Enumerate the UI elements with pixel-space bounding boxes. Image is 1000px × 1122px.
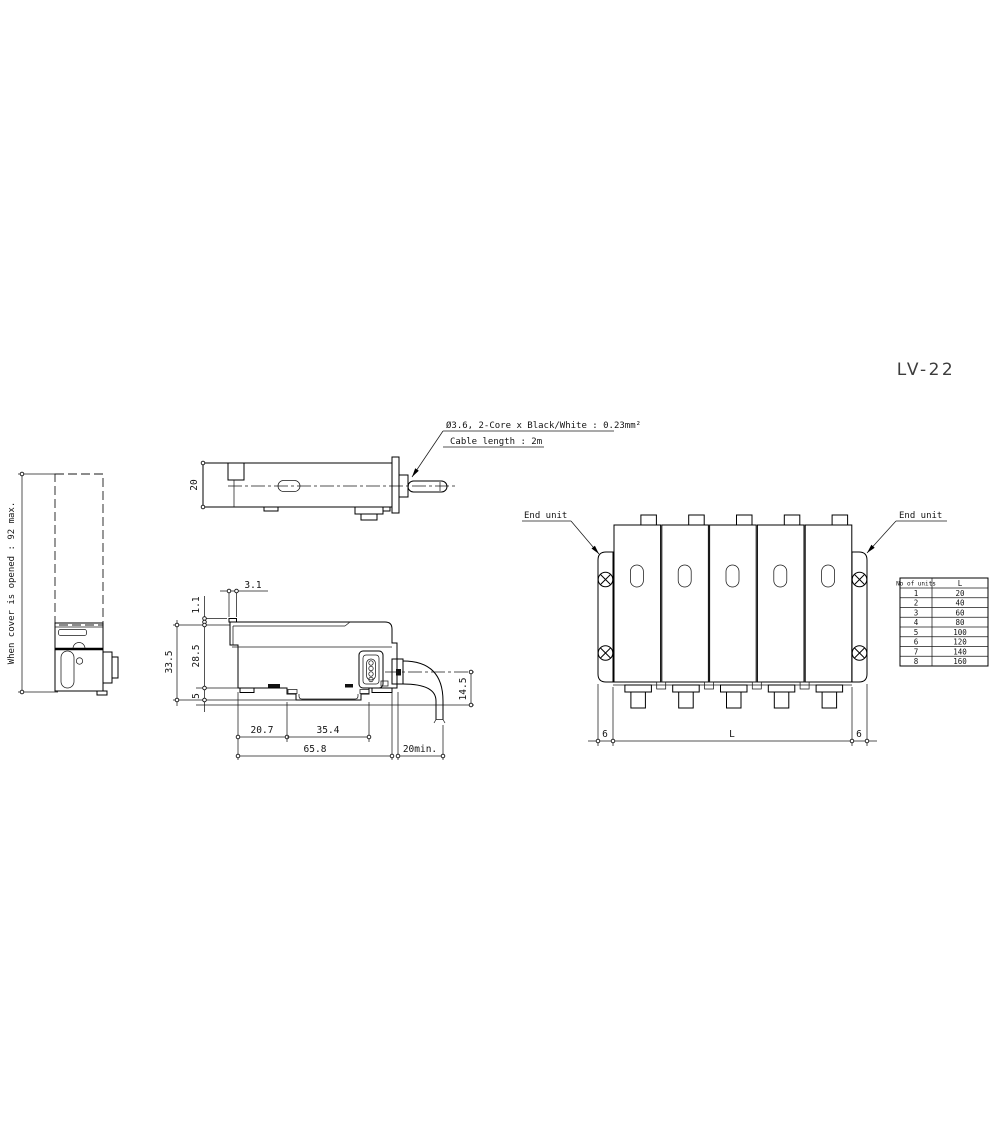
cell-length: 80 xyxy=(955,618,965,627)
top-view: 20 Ø3.6, 2-Core x Black/White : 0.23mm² … xyxy=(189,420,641,520)
dim-width-20-label: 20 xyxy=(189,479,200,491)
end-unit-left-label: End unit xyxy=(524,511,567,521)
side-view: 3.1 1.1 33.5 28.5 5 xyxy=(164,580,474,760)
cell-length: 40 xyxy=(955,599,965,608)
cell-length: 140 xyxy=(953,647,967,656)
cable-stub xyxy=(408,481,447,492)
dim-base-height: 5 xyxy=(191,693,202,699)
opened-cover-phantom-outline xyxy=(55,474,103,625)
table-row: 3 60 xyxy=(914,608,965,617)
dim-bend-radius: 20min. xyxy=(403,744,437,755)
amplifier-units xyxy=(614,515,852,708)
vent-slot xyxy=(268,684,280,688)
dim-span: L xyxy=(729,729,735,740)
dim-end-left: 6 xyxy=(602,729,608,740)
cell-length: 160 xyxy=(953,657,967,666)
mount-foot xyxy=(240,688,254,693)
vent-slot xyxy=(345,684,353,688)
leader-arrow-icon xyxy=(412,468,419,477)
table-row: 1 20 xyxy=(914,589,965,598)
din-channel-tray xyxy=(299,694,358,699)
table-row: 5 100 xyxy=(914,628,968,637)
side-view-dimensions: 3.1 1.1 33.5 28.5 5 xyxy=(164,580,473,760)
dim-width-20: 20 xyxy=(189,461,205,509)
din-latch-narrow xyxy=(361,514,377,520)
cover-tab xyxy=(229,619,237,623)
dim-overall-length: 65.8 xyxy=(304,744,327,755)
cable-flange xyxy=(392,457,399,513)
table-row: 2 40 xyxy=(914,599,965,608)
cable-length-text: Cable length : 2m xyxy=(450,437,542,447)
mount-foot xyxy=(97,691,107,695)
dim-body-height: 28.5 xyxy=(191,645,202,668)
cell-units: 5 xyxy=(914,628,919,637)
table-header-units: No of units xyxy=(896,581,936,588)
technical-drawing-canvas: LV-22 When cover is opened : 92 max. xyxy=(0,0,1000,1122)
model-title: LV-22 xyxy=(897,360,956,380)
mount-foot xyxy=(372,688,392,693)
end-unit-right-label: End unit xyxy=(899,511,942,521)
top-view-body-outline xyxy=(203,463,392,507)
dim-tab-height: 1.1 xyxy=(191,596,202,613)
cell-units: 6 xyxy=(914,638,919,647)
din-tab-small xyxy=(264,507,278,511)
dim-cable-drop: 14.5 xyxy=(458,678,469,701)
left-view-body xyxy=(55,623,118,695)
table-row: 4 80 xyxy=(914,618,965,627)
cell-length: 120 xyxy=(953,638,967,647)
end-unit-right xyxy=(852,552,867,682)
cable-spec-text: Ø3.6, 2-Core x Black/White : 0.23mm² xyxy=(446,420,641,431)
dim-cover-opened: When cover is opened : 92 max. xyxy=(7,472,58,694)
assembly-view: End unit End unit 6 L 6 xyxy=(522,511,947,746)
units-table: No of units L 1 20 2 40 3 60 4 80 5 100 … xyxy=(896,578,988,666)
cell-units: 3 xyxy=(914,608,919,617)
cell-length: 60 xyxy=(955,608,965,617)
mount-tab-top xyxy=(228,463,244,480)
din-latch-wide xyxy=(355,507,383,514)
cell-units: 7 xyxy=(914,647,919,656)
cell-length: 100 xyxy=(953,628,967,637)
end-unit-left xyxy=(598,552,613,682)
dim-slot-width: 35.4 xyxy=(317,725,340,736)
table-row: 7 140 xyxy=(914,647,968,656)
cell-units: 2 xyxy=(914,599,919,608)
dim-overall-height: 33.5 xyxy=(164,651,175,674)
phillips-screw-icon xyxy=(852,572,867,587)
phillips-screw-icon xyxy=(852,646,867,661)
cell-units: 1 xyxy=(914,589,919,598)
screw-hole-icon xyxy=(76,658,82,664)
phillips-screw-icon xyxy=(598,646,613,661)
cable-connector-side xyxy=(103,652,112,683)
cable-annotation: Ø3.6, 2-Core x Black/White : 0.23mm² Cab… xyxy=(412,420,641,477)
cell-units: 4 xyxy=(914,618,919,627)
drawing-page: LV-22 When cover is opened : 92 max. xyxy=(0,0,1000,1122)
table-row: 8 160 xyxy=(914,657,968,666)
phillips-screw-icon xyxy=(598,572,613,587)
left-view: When cover is opened : 92 max. xyxy=(7,472,118,695)
dim-cover-opened-label: When cover is opened : 92 max. xyxy=(7,502,17,665)
dim-front-to-slot: 20.7 xyxy=(251,725,274,736)
display-connector-block xyxy=(359,651,388,688)
cell-units: 8 xyxy=(914,657,919,666)
end-unit-left-callout: End unit xyxy=(522,511,599,554)
end-unit-right-callout: End unit xyxy=(867,511,947,553)
table-header-length: L xyxy=(958,579,963,588)
dim-end-right: 6 xyxy=(856,729,862,740)
cell-length: 20 xyxy=(955,589,965,598)
dim-tab-width: 3.1 xyxy=(244,580,261,591)
table-row: 6 120 xyxy=(914,638,968,647)
